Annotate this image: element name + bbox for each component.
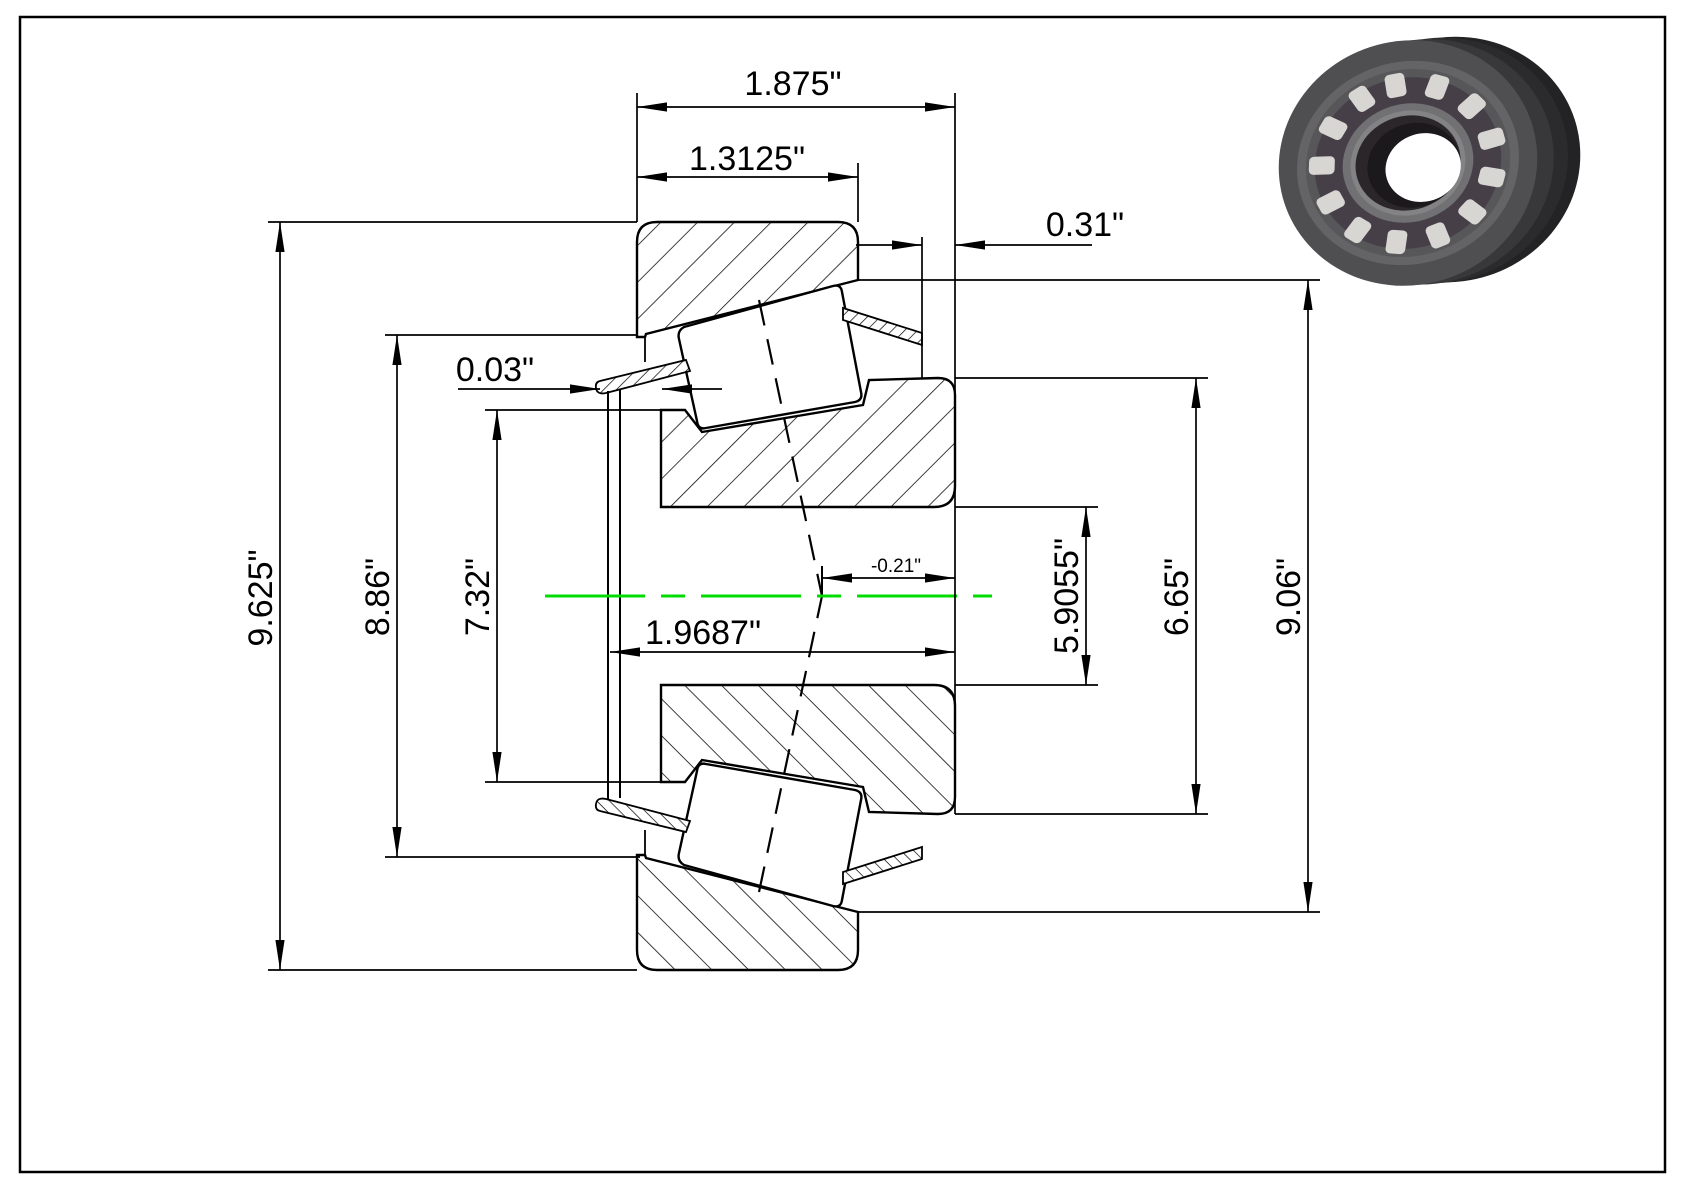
- bearing-drawing-canvas: 1.875" 1.3125" 0.31" 0.03" 9.625" 8.86" …: [0, 0, 1684, 1191]
- label-overall-width: 1.875": [744, 65, 841, 103]
- label-outer-diameter: 9.06": [1270, 558, 1308, 636]
- label-cage-thickness: 0.03": [456, 351, 534, 389]
- label-effective-center: -0.21": [871, 556, 921, 577]
- drawing-page: 1.875" 1.3125" 0.31" 0.03" 9.625" 8.86" …: [0, 0, 1684, 1191]
- label-cup-width: 1.3125": [689, 140, 805, 178]
- label-8-86: 8.86": [359, 558, 397, 636]
- label-6-65: 6.65": [1158, 558, 1196, 636]
- label-7-32: 7.32": [459, 558, 497, 636]
- label-bore-diameter: 5.9055": [1048, 538, 1086, 654]
- label-back-offset: 0.31": [1046, 206, 1124, 244]
- label-flange-diameter: 9.625": [242, 549, 280, 646]
- label-cone-width: 1.9687": [645, 614, 761, 652]
